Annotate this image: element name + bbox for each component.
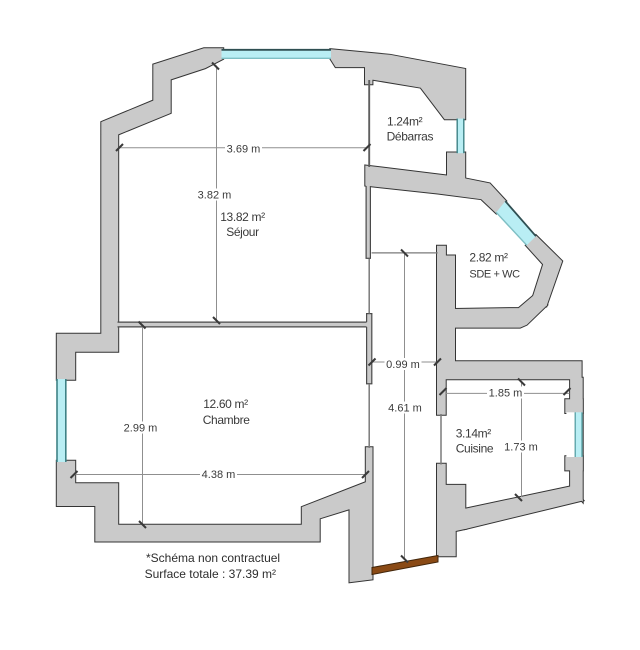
svg-text:1.73 m: 1.73 m: [504, 441, 538, 453]
svg-text:0.99 m: 0.99 m: [386, 359, 420, 371]
svg-text:3.14m²: 3.14m²: [456, 427, 492, 441]
svg-text:3.69 m: 3.69 m: [227, 144, 261, 156]
svg-text:13.82 m²: 13.82 m²: [220, 210, 265, 224]
svg-text:2.99 m: 2.99 m: [124, 423, 158, 435]
svg-text:Débarras: Débarras: [387, 129, 434, 143]
svg-text:Surface totale : 37.39 m²: Surface totale : 37.39 m²: [145, 567, 276, 581]
svg-text:4.38 m: 4.38 m: [202, 469, 236, 481]
svg-text:1.85 m: 1.85 m: [489, 388, 523, 400]
svg-text:Séjour: Séjour: [226, 225, 259, 239]
svg-text:Cuisine: Cuisine: [456, 442, 494, 456]
svg-text:3.82 m: 3.82 m: [198, 190, 232, 202]
svg-text:1.24m²: 1.24m²: [387, 115, 423, 129]
svg-text:4.61 m: 4.61 m: [388, 403, 422, 415]
svg-text:12.60 m²: 12.60 m²: [203, 397, 248, 411]
svg-text:SDE + WC: SDE + WC: [469, 269, 520, 281]
svg-text:2.82 m²: 2.82 m²: [469, 251, 508, 265]
svg-text:*Schéma non contractuel: *Schéma non contractuel: [146, 551, 280, 565]
svg-text:Chambre: Chambre: [203, 413, 251, 427]
